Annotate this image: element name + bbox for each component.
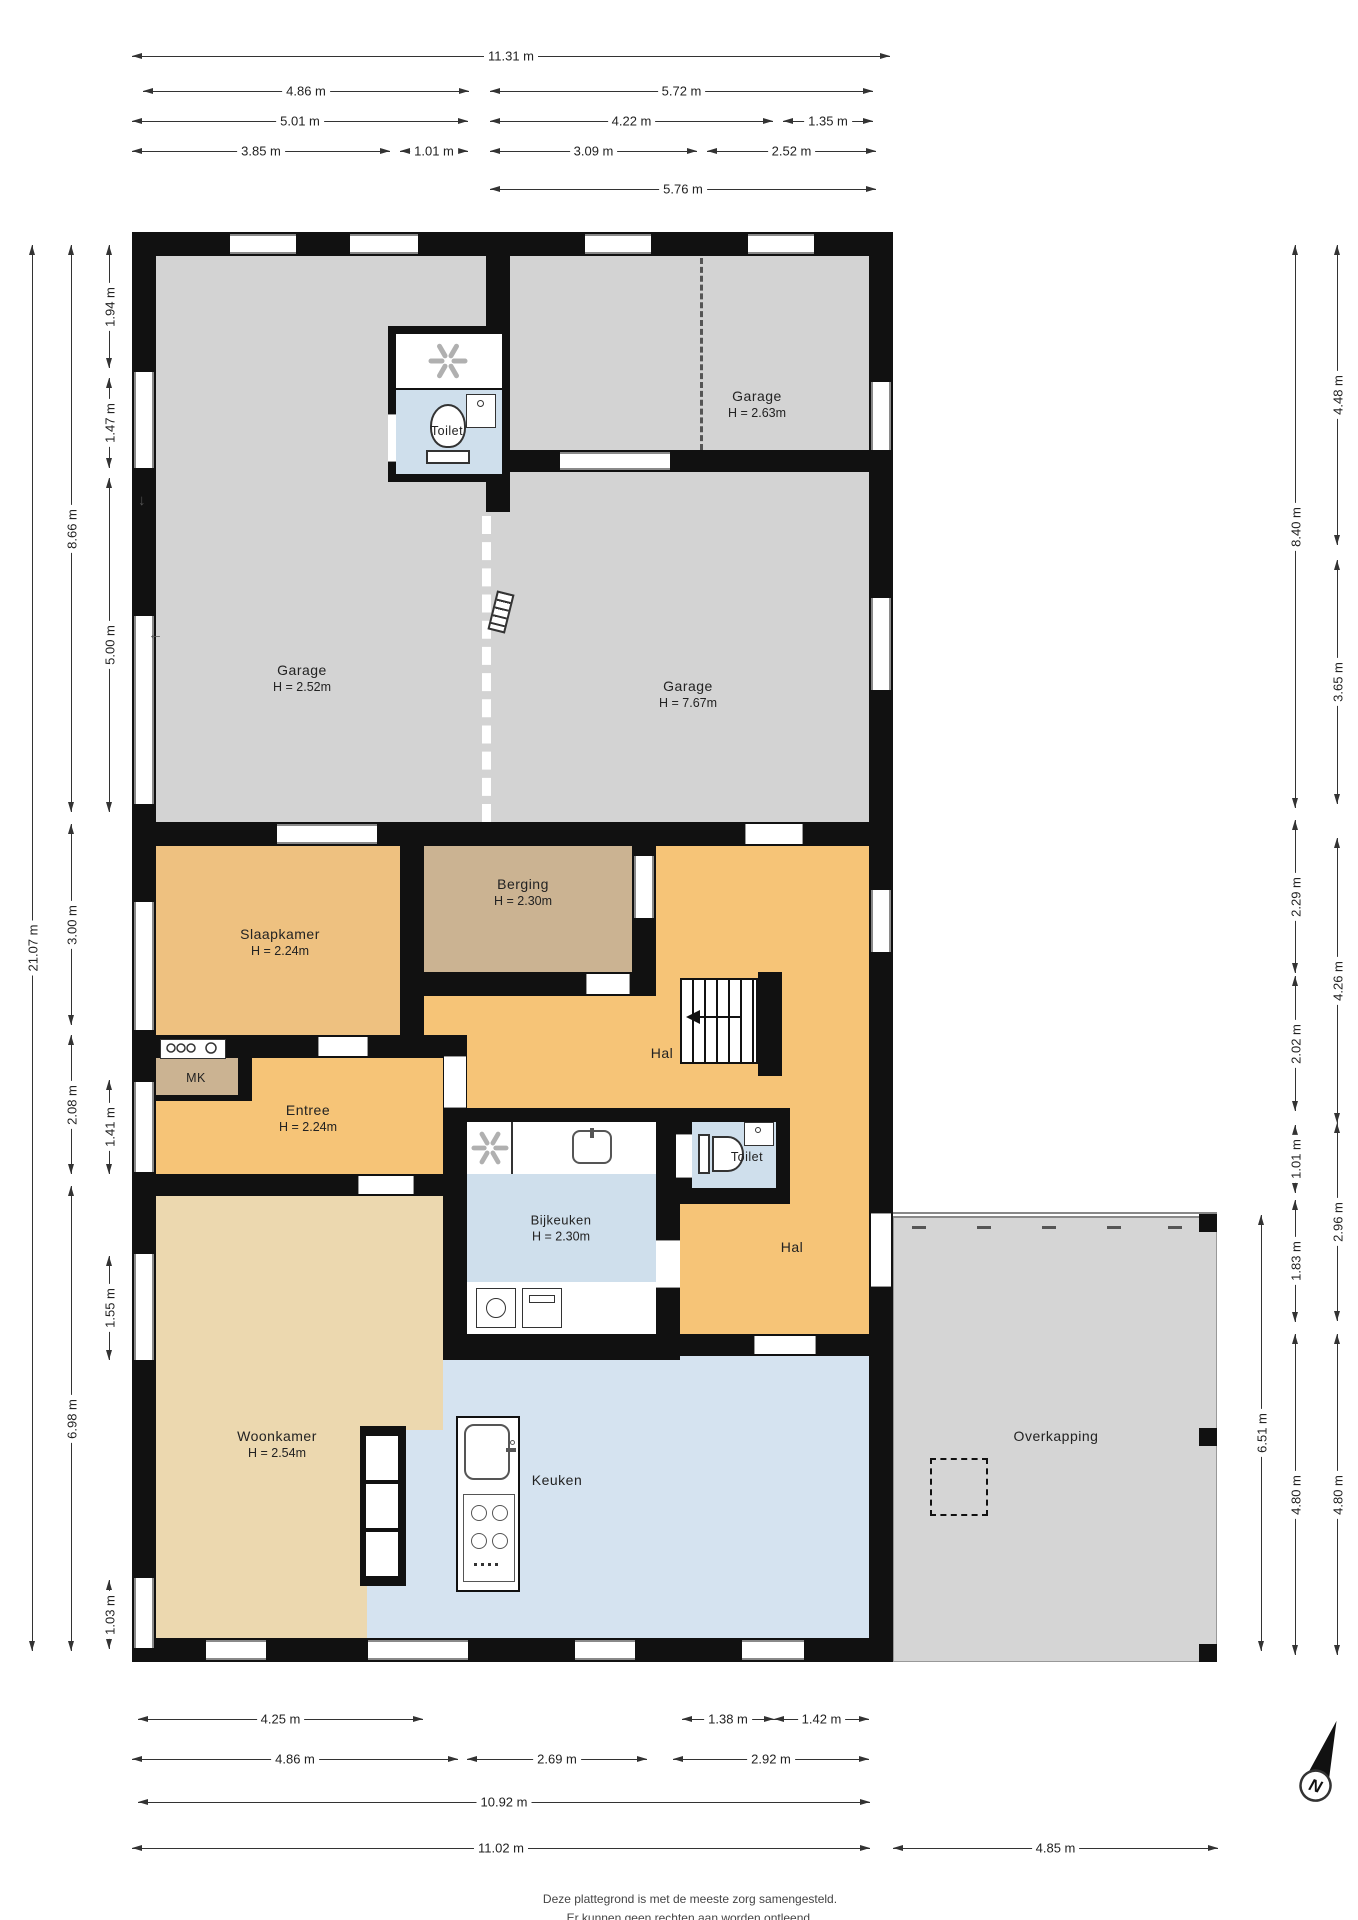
kitchen-island: [456, 1416, 520, 1592]
kitchen-cabinet: [360, 1426, 406, 1586]
dimension-label: 3.00 m: [65, 901, 80, 949]
dimension-vertical: 8.66 m: [67, 245, 77, 812]
overkapping-tick: [1168, 1226, 1182, 1229]
dimension-vertical: 5.00 m: [105, 478, 115, 812]
door-garage-hal: [745, 824, 803, 844]
window: [871, 598, 891, 690]
door-bijkeuken-hal: [656, 1240, 680, 1288]
meter-cupboard-icon: [160, 1039, 226, 1059]
window: [575, 1640, 635, 1660]
dimension-vertical: 21.07 m: [28, 245, 38, 1651]
dimension-vertical: 1.83 m: [1291, 1200, 1301, 1322]
sink-icon: [466, 394, 496, 428]
dimension-horizontal: 5.01 m: [132, 117, 468, 127]
dimension-label: 21.07 m: [26, 921, 41, 976]
bijkeuken-counter-top: [467, 1122, 656, 1174]
door-slaapkamer: [318, 1037, 368, 1056]
compass: N: [1278, 1716, 1358, 1816]
overkapping-post: [1199, 1214, 1217, 1232]
window: [350, 234, 418, 254]
dimension-vertical: 6.51 m: [1257, 1215, 1267, 1651]
dimension-label: 2.02 m: [1289, 1020, 1304, 1068]
garage-topright-divider: [700, 258, 703, 450]
wall-mk-right: [238, 1035, 252, 1101]
dimension-label: 6.98 m: [65, 1395, 80, 1443]
floorplan-canvas: ↓ ←: [0, 0, 1358, 1920]
dimension-label: 6.51 m: [1255, 1409, 1270, 1457]
dimension-label: 1.41 m: [103, 1103, 118, 1151]
window: [134, 1082, 154, 1172]
window: [134, 616, 154, 804]
dimension-label: 1.35 m: [804, 114, 852, 129]
dimension-horizontal: 1.42 m: [774, 1715, 869, 1725]
dimension-horizontal: 10.92 m: [138, 1798, 870, 1808]
dimension-vertical: 8.40 m: [1291, 245, 1301, 808]
stairs-arrow-line: [700, 1016, 742, 1018]
dimension-vertical: 1.03 m: [105, 1580, 115, 1649]
room-label-keuken: Keuken: [532, 1472, 582, 1488]
wall-mk-bottom: [156, 1095, 252, 1101]
dimension-label: 1.01 m: [410, 144, 458, 159]
dimension-vertical: 1.41 m: [105, 1080, 115, 1174]
room-label-toilet-boven: Toilet: [431, 424, 463, 438]
dimension-label: 1.47 m: [103, 399, 118, 447]
dimension-label: 4.80 m: [1331, 1471, 1346, 1519]
dimension-label: 5.72 m: [658, 84, 706, 99]
overkapping-tick: [1107, 1226, 1121, 1229]
dimension-label: 3.65 m: [1331, 658, 1346, 706]
dimension-vertical: 1.01 m: [1291, 1125, 1301, 1193]
dimension-label: 5.01 m: [276, 114, 324, 129]
door-swing-arrow: ←: [148, 626, 163, 643]
overkapping-tick: [912, 1226, 926, 1229]
dimension-vertical: 3.00 m: [67, 824, 77, 1025]
dimension-label: 4.25 m: [257, 1712, 305, 1727]
dimension-vertical: 4.80 m: [1291, 1334, 1301, 1655]
window: [560, 452, 670, 470]
window: [634, 856, 654, 918]
fan-icon: [471, 1129, 509, 1167]
sink-icon: [464, 1424, 510, 1480]
dimension-label: 1.42 m: [798, 1712, 846, 1727]
room-label-overkapping: Overkapping: [1014, 1428, 1099, 1444]
room-garage-top-right: [510, 256, 869, 450]
door-to-overkapping: [871, 1213, 891, 1287]
dimension-label: 2.96 m: [1331, 1198, 1346, 1246]
window: [585, 234, 651, 254]
dimension-vertical: 1.47 m: [105, 378, 115, 468]
dimension-vertical: 3.65 m: [1333, 560, 1343, 804]
dimension-horizontal: 5.76 m: [490, 185, 876, 195]
dimension-label: 5.76 m: [659, 182, 707, 197]
window: [742, 1640, 804, 1660]
overkapping-open-edge: [893, 1212, 1217, 1218]
stove-icon: [463, 1494, 515, 1582]
dimension-horizontal: 4.25 m: [138, 1715, 423, 1725]
dimension-vertical: 4.48 m: [1333, 245, 1343, 545]
dimension-horizontal: 4.86 m: [132, 1755, 458, 1765]
dimension-label: 10.92 m: [477, 1795, 532, 1810]
dimension-label: 4.86 m: [282, 84, 330, 99]
dimension-label: 1.03 m: [103, 1591, 118, 1639]
room-label-hal-beneden: Hal: [781, 1239, 804, 1255]
fan-icon: [428, 341, 468, 381]
room-label-woonkamer: WoonkamerH = 2.54m: [237, 1428, 317, 1460]
room-label-entree: EntreeH = 2.24m: [279, 1102, 337, 1134]
sink-icon: [572, 1130, 612, 1164]
room-label-garage-mid: GarageH = 7.67m: [659, 678, 717, 710]
sink-icon: [744, 1122, 774, 1146]
room-label-slaapkamer: SlaapkamerH = 2.24m: [240, 926, 320, 958]
dimension-vertical: 1.94 m: [105, 245, 115, 368]
dimension-horizontal: 4.85 m: [893, 1844, 1218, 1854]
dimension-label: 2.29 m: [1289, 873, 1304, 921]
wall-slaapkamer-right: [400, 846, 424, 1058]
dimension-vertical: 2.29 m: [1291, 820, 1301, 973]
window: [871, 382, 891, 450]
room-label-mk: MK: [186, 1071, 206, 1085]
dimension-label: 11.02 m: [474, 1841, 528, 1856]
dimension-label: 4.86 m: [271, 1752, 319, 1767]
dimension-label: 5.00 m: [103, 621, 118, 669]
mv-unit: [396, 334, 502, 388]
overkapping-tick: [1042, 1226, 1056, 1229]
dimension-label: 4.22 m: [608, 114, 656, 129]
dimension-horizontal: 2.92 m: [673, 1755, 869, 1765]
dimension-vertical: 4.26 m: [1333, 838, 1343, 1123]
dimension-vertical: 1.55 m: [105, 1256, 115, 1360]
room-label-hal-boven: Hal: [651, 1045, 674, 1061]
dimension-label: 3.85 m: [237, 144, 285, 159]
dimension-label: 4.26 m: [1331, 957, 1346, 1005]
dimension-label: 1.94 m: [103, 283, 118, 331]
dimension-horizontal: 4.22 m: [490, 117, 773, 127]
dimension-label: 2.52 m: [768, 144, 816, 159]
overkapping-tick: [977, 1226, 991, 1229]
overkapping-post: [1199, 1428, 1217, 1446]
dimension-horizontal: 1.35 m: [783, 117, 873, 127]
dimension-label: 3.09 m: [570, 144, 618, 159]
dimension-horizontal: 5.72 m: [490, 87, 873, 97]
room-label-bijkeuken: BijkeukenH = 2.30m: [531, 1213, 592, 1244]
dimension-label: 4.85 m: [1032, 1841, 1080, 1856]
window: [134, 372, 154, 468]
dimension-horizontal: 1.38 m: [682, 1715, 774, 1725]
dimension-label: 1.55 m: [103, 1284, 118, 1332]
room-label-garage-top-right: GarageH = 2.63m: [728, 388, 786, 420]
window: [134, 902, 154, 1030]
dimension-label: 2.69 m: [533, 1752, 581, 1767]
dimension-label: 1.01 m: [1289, 1135, 1304, 1183]
appliance-icon: [522, 1288, 562, 1328]
dimension-label: 4.80 m: [1289, 1471, 1304, 1519]
room-label-garage-left: GarageH = 2.52m: [273, 662, 331, 694]
door-hal-keuken: [754, 1336, 816, 1354]
dimension-label: 8.40 m: [1289, 503, 1304, 551]
room-garage-mid: [486, 472, 869, 822]
room-label-toilet-beneden: Toilet: [731, 1150, 763, 1164]
door-entree-woonkamer: [358, 1176, 414, 1194]
dimension-label: 2.92 m: [747, 1752, 795, 1767]
door-swing-arrow: ↓: [138, 492, 146, 509]
window: [368, 1640, 468, 1660]
dimension-horizontal: 2.69 m: [467, 1755, 647, 1765]
dimension-horizontal: 1.01 m: [400, 147, 468, 157]
overkapping-post: [1199, 1644, 1217, 1662]
disclaimer-text: Deze plattegrond is met de meeste zorg s…: [390, 1890, 990, 1920]
dimension-horizontal: 3.09 m: [490, 147, 697, 157]
dimension-label: 4.48 m: [1331, 371, 1346, 419]
door-toilet-boven: [388, 414, 396, 462]
dimension-vertical: 2.96 m: [1333, 1123, 1343, 1321]
dimension-label: 1.38 m: [704, 1712, 752, 1727]
room-berging: [424, 846, 656, 972]
window: [206, 1640, 266, 1660]
wc-tank-icon: [426, 450, 470, 464]
dimension-vertical: 4.80 m: [1333, 1334, 1343, 1655]
window: [134, 1578, 154, 1648]
dimension-horizontal: 2.52 m: [707, 147, 876, 157]
door-entree-hal: [444, 1056, 466, 1108]
wall-stairs-right: [758, 972, 782, 1076]
wc-tank-icon: [698, 1134, 710, 1174]
overkapping-dashed-object: [930, 1458, 988, 1516]
window: [871, 890, 891, 952]
dimension-vertical: 2.08 m: [67, 1035, 77, 1174]
dimension-horizontal: 4.86 m: [143, 87, 469, 97]
dimension-horizontal: 11.31 m: [132, 52, 890, 62]
garage-open-boundary: [482, 516, 491, 822]
door-berging: [586, 974, 630, 994]
door-toilet-beneden: [676, 1134, 692, 1178]
window: [748, 234, 814, 254]
window: [230, 234, 296, 254]
dimension-label: 2.08 m: [65, 1081, 80, 1129]
dimension-horizontal: 3.85 m: [132, 147, 390, 157]
stairs-arrow-head: [686, 1010, 700, 1024]
dimension-label: 1.83 m: [1289, 1237, 1304, 1285]
dimension-horizontal: 11.02 m: [132, 1844, 870, 1854]
dimension-label: 11.31 m: [484, 49, 538, 64]
washer-icon: [476, 1288, 516, 1328]
dimension-vertical: 2.02 m: [1291, 976, 1301, 1111]
dimension-label: 8.66 m: [65, 505, 80, 553]
room-label-berging: BergingH = 2.30m: [494, 876, 552, 908]
bijkeuken-counter-bottom: [467, 1282, 656, 1334]
window: [134, 1254, 154, 1360]
dimension-vertical: 6.98 m: [67, 1186, 77, 1651]
window: [277, 824, 377, 844]
